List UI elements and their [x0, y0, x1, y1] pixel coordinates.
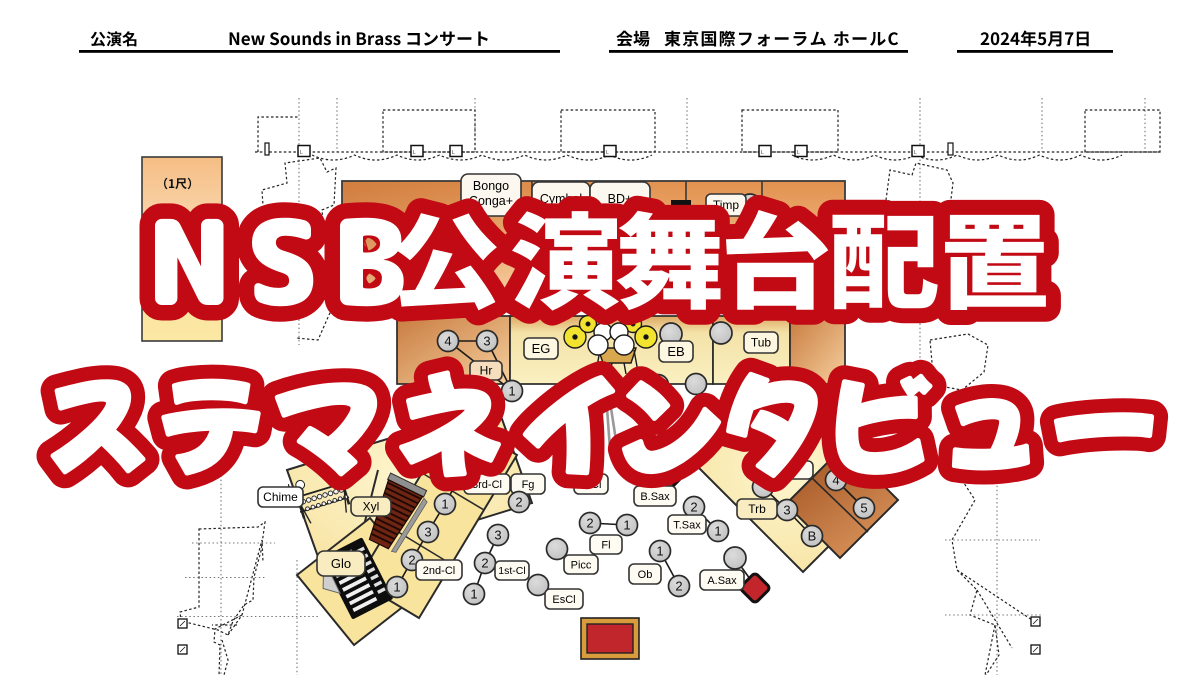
svg-text:2: 2: [408, 553, 415, 568]
svg-text:Trb: Trb: [748, 502, 766, 516]
svg-text:2: 2: [515, 495, 522, 510]
svg-text:L: L: [606, 150, 609, 156]
svg-text:1: 1: [393, 580, 400, 595]
svg-text:2: 2: [586, 516, 593, 531]
svg-text:4: 4: [444, 334, 451, 349]
svg-text:1: 1: [714, 524, 721, 539]
svg-text:Xyl: Xyl: [363, 500, 380, 514]
svg-text:EsCl: EsCl: [552, 594, 575, 606]
svg-text:1: 1: [623, 518, 630, 533]
svg-text:Picc: Picc: [571, 559, 592, 571]
svg-text:Ob: Ob: [638, 569, 653, 581]
svg-text:L: L: [797, 150, 800, 156]
svg-text:A.Sax: A.Sax: [707, 575, 737, 587]
svg-text:2nd-Cl: 2nd-Cl: [423, 565, 455, 577]
svg-text:Hr: Hr: [480, 364, 493, 378]
svg-text:3: 3: [494, 528, 501, 543]
svg-text:3: 3: [424, 525, 431, 540]
svg-text:Fl: Fl: [601, 539, 610, 551]
svg-text:Chime: Chime: [263, 490, 298, 504]
svg-text:2: 2: [481, 556, 488, 571]
svg-text:1st-Cl: 1st-Cl: [498, 565, 525, 577]
svg-text:EB: EB: [667, 344, 684, 359]
svg-text:2: 2: [690, 500, 697, 515]
svg-text:2: 2: [675, 579, 682, 594]
svg-text:1: 1: [508, 384, 515, 399]
svg-text:EG: EG: [532, 341, 551, 356]
svg-text:1: 1: [441, 497, 448, 512]
svg-text:5: 5: [860, 501, 867, 516]
svg-text:1: 1: [470, 587, 477, 602]
svg-text:Bongo: Bongo: [473, 179, 509, 193]
svg-text:L: L: [914, 150, 917, 156]
svg-text:Tub: Tub: [751, 336, 772, 350]
svg-text:B: B: [808, 529, 817, 544]
svg-text:B.Sax: B.Sax: [640, 491, 670, 503]
svg-text:Glo: Glo: [331, 556, 351, 571]
svg-text:Fg: Fg: [522, 479, 535, 491]
svg-text:3: 3: [483, 334, 490, 349]
svg-text:3: 3: [783, 503, 790, 518]
svg-text:1: 1: [656, 544, 663, 559]
svg-text:L: L: [413, 150, 416, 156]
svg-text:T.Sax: T.Sax: [673, 519, 701, 531]
svg-text:L: L: [761, 150, 764, 156]
svg-text:L: L: [300, 150, 303, 156]
svg-text:L: L: [452, 150, 455, 156]
